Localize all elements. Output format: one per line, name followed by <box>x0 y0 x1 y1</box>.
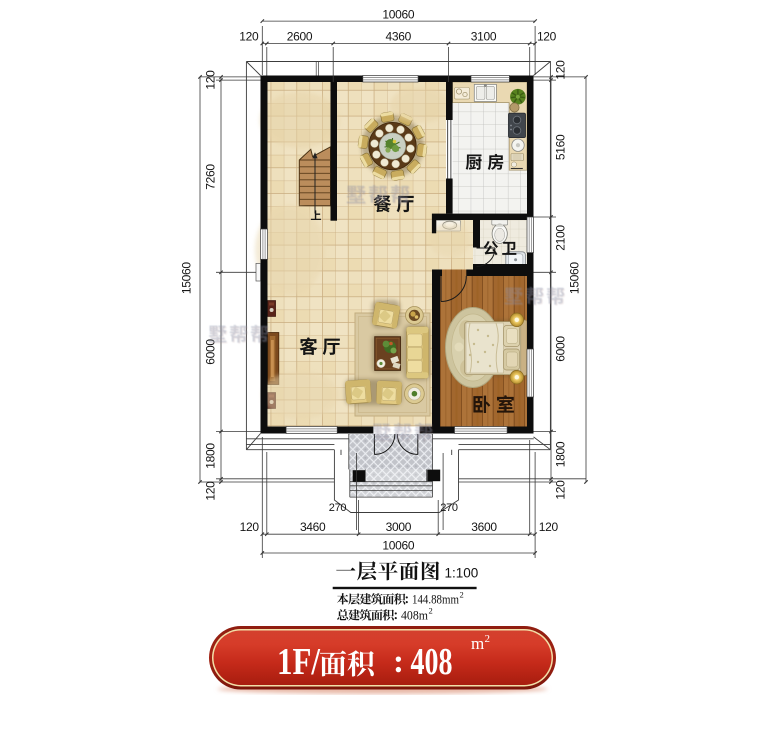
svg-text:15060: 15060 <box>568 262 582 294</box>
svg-text:408: 408 <box>411 641 453 683</box>
svg-text:270: 270 <box>440 502 458 514</box>
svg-text:1:100: 1:100 <box>445 566 479 581</box>
svg-text:3600: 3600 <box>471 520 497 534</box>
svg-text:1800: 1800 <box>554 441 568 467</box>
svg-text:10060: 10060 <box>382 539 414 553</box>
svg-text:144.88mm: 144.88mm <box>412 592 459 607</box>
svg-text:5160: 5160 <box>554 134 568 160</box>
svg-text:120: 120 <box>554 60 568 80</box>
svg-text:7260: 7260 <box>204 164 218 190</box>
svg-text:1800: 1800 <box>204 443 218 469</box>
svg-text:3460: 3460 <box>300 520 326 534</box>
svg-text:4360: 4360 <box>386 30 412 44</box>
svg-text:120: 120 <box>204 481 218 501</box>
svg-text::: : <box>393 644 404 680</box>
svg-text:120: 120 <box>539 520 559 534</box>
svg-text:m: m <box>471 634 484 653</box>
svg-text:120: 120 <box>239 30 259 44</box>
svg-text:2600: 2600 <box>287 30 313 44</box>
svg-text:2100: 2100 <box>554 225 568 251</box>
svg-text:2: 2 <box>429 606 433 616</box>
svg-text:120: 120 <box>554 480 568 500</box>
svg-text:120: 120 <box>204 70 218 90</box>
svg-text:270: 270 <box>329 502 347 514</box>
svg-text:3100: 3100 <box>471 30 497 44</box>
svg-text:3000: 3000 <box>386 520 412 534</box>
svg-text:6000: 6000 <box>554 336 568 362</box>
svg-text:1F/: 1F/ <box>277 641 320 683</box>
svg-text:2: 2 <box>460 590 464 600</box>
svg-text:2: 2 <box>485 633 491 645</box>
svg-text:120: 120 <box>240 520 260 534</box>
svg-text:408m: 408m <box>401 608 428 623</box>
svg-text:15060: 15060 <box>180 262 194 294</box>
svg-text:120: 120 <box>537 30 557 44</box>
svg-text:10060: 10060 <box>382 8 414 22</box>
